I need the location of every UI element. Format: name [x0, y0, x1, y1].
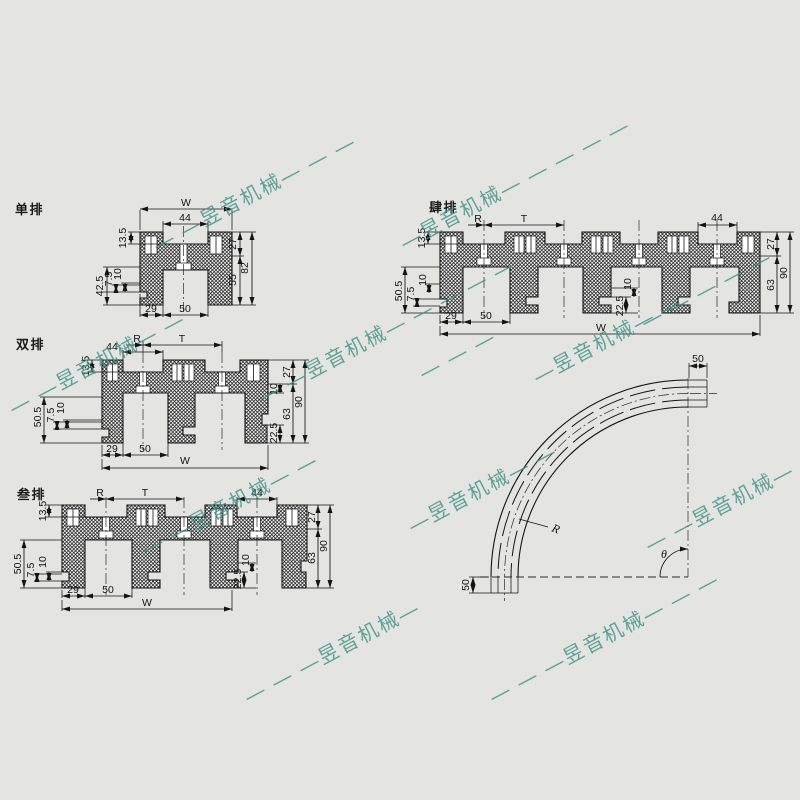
watermark-text: — — —昱音机械— — —: [486, 567, 724, 708]
dim-label: 90: [318, 540, 330, 552]
dim-label: 50.5: [12, 554, 24, 575]
watermark-text: — —昱音机械— —: [642, 444, 800, 556]
dim-label: 7.5: [25, 563, 37, 578]
label-double-row: 双排: [16, 337, 45, 352]
dim-label: 50: [139, 443, 151, 455]
profile-triple: [62, 497, 307, 595]
dim-label: 10: [112, 268, 124, 280]
watermark-text: — — —昱音机械—: [241, 596, 425, 708]
dim-label: 29: [145, 303, 157, 315]
dim-label: 50: [460, 579, 472, 591]
dim-label: 27: [227, 238, 239, 250]
dim-label: 50.5: [393, 281, 405, 302]
watermark-text: — — —: [416, 326, 500, 385]
dim-label: 50: [102, 584, 114, 596]
watermark-text: — —昱音机械— — —: [150, 130, 361, 257]
dim-label: 44: [711, 212, 723, 224]
dim-label: 22.5: [614, 296, 626, 317]
dim-label: 10: [240, 554, 252, 566]
label-triple-row: 叁排: [16, 487, 46, 502]
dim-label: T: [142, 487, 149, 499]
dim-label: T: [521, 213, 528, 225]
dim-label: 63: [281, 408, 293, 420]
curve-rail: [491, 380, 717, 601]
dim-label: W: [181, 197, 191, 209]
dim-label: 13.5: [37, 501, 49, 522]
dim-label: 10: [55, 402, 67, 414]
dim-label: 90: [778, 267, 790, 279]
dim-label: 10: [417, 274, 429, 286]
dim-label: 63: [306, 552, 318, 564]
dim-label: 10: [37, 556, 49, 568]
dim-label: 22.5: [268, 423, 280, 444]
dim-label: 82: [239, 262, 251, 274]
dim-label: 10: [622, 278, 634, 290]
watermark-text: —昱音机械— —: [405, 439, 562, 537]
dim-label: T: [179, 333, 186, 345]
dim-label: 22.5: [232, 569, 244, 590]
dim-label: 27: [306, 511, 318, 523]
dim-label: R: [96, 487, 104, 499]
dim-label: W: [180, 455, 190, 467]
dim-label: 50: [480, 310, 492, 322]
dim-label: 29: [67, 584, 79, 596]
drawing-sheet: 单排: [0, 0, 800, 800]
label-single-row: 单排: [15, 202, 44, 217]
profile-double: [102, 352, 268, 450]
dim-label: W: [142, 597, 152, 609]
drawing-triple-row: 叁排: [12, 487, 334, 611]
dim-label: 90: [293, 396, 305, 408]
dim-label: 50: [692, 353, 704, 365]
dim-label: 55: [227, 274, 239, 286]
radius-label: R: [549, 520, 563, 536]
sheet-svg: 单排: [0, 0, 800, 800]
dim-label: 13.5: [117, 228, 129, 249]
watermark-text: — —昱音机械— —: [6, 307, 190, 419]
watermark-layer: — —昱音机械— — — —昱音机械— — — — — — —昱音机械— — —…: [6, 113, 800, 708]
dim-label: 29: [106, 443, 118, 455]
dim-label: 7.5: [405, 287, 417, 302]
dim-label: 63: [765, 279, 777, 291]
